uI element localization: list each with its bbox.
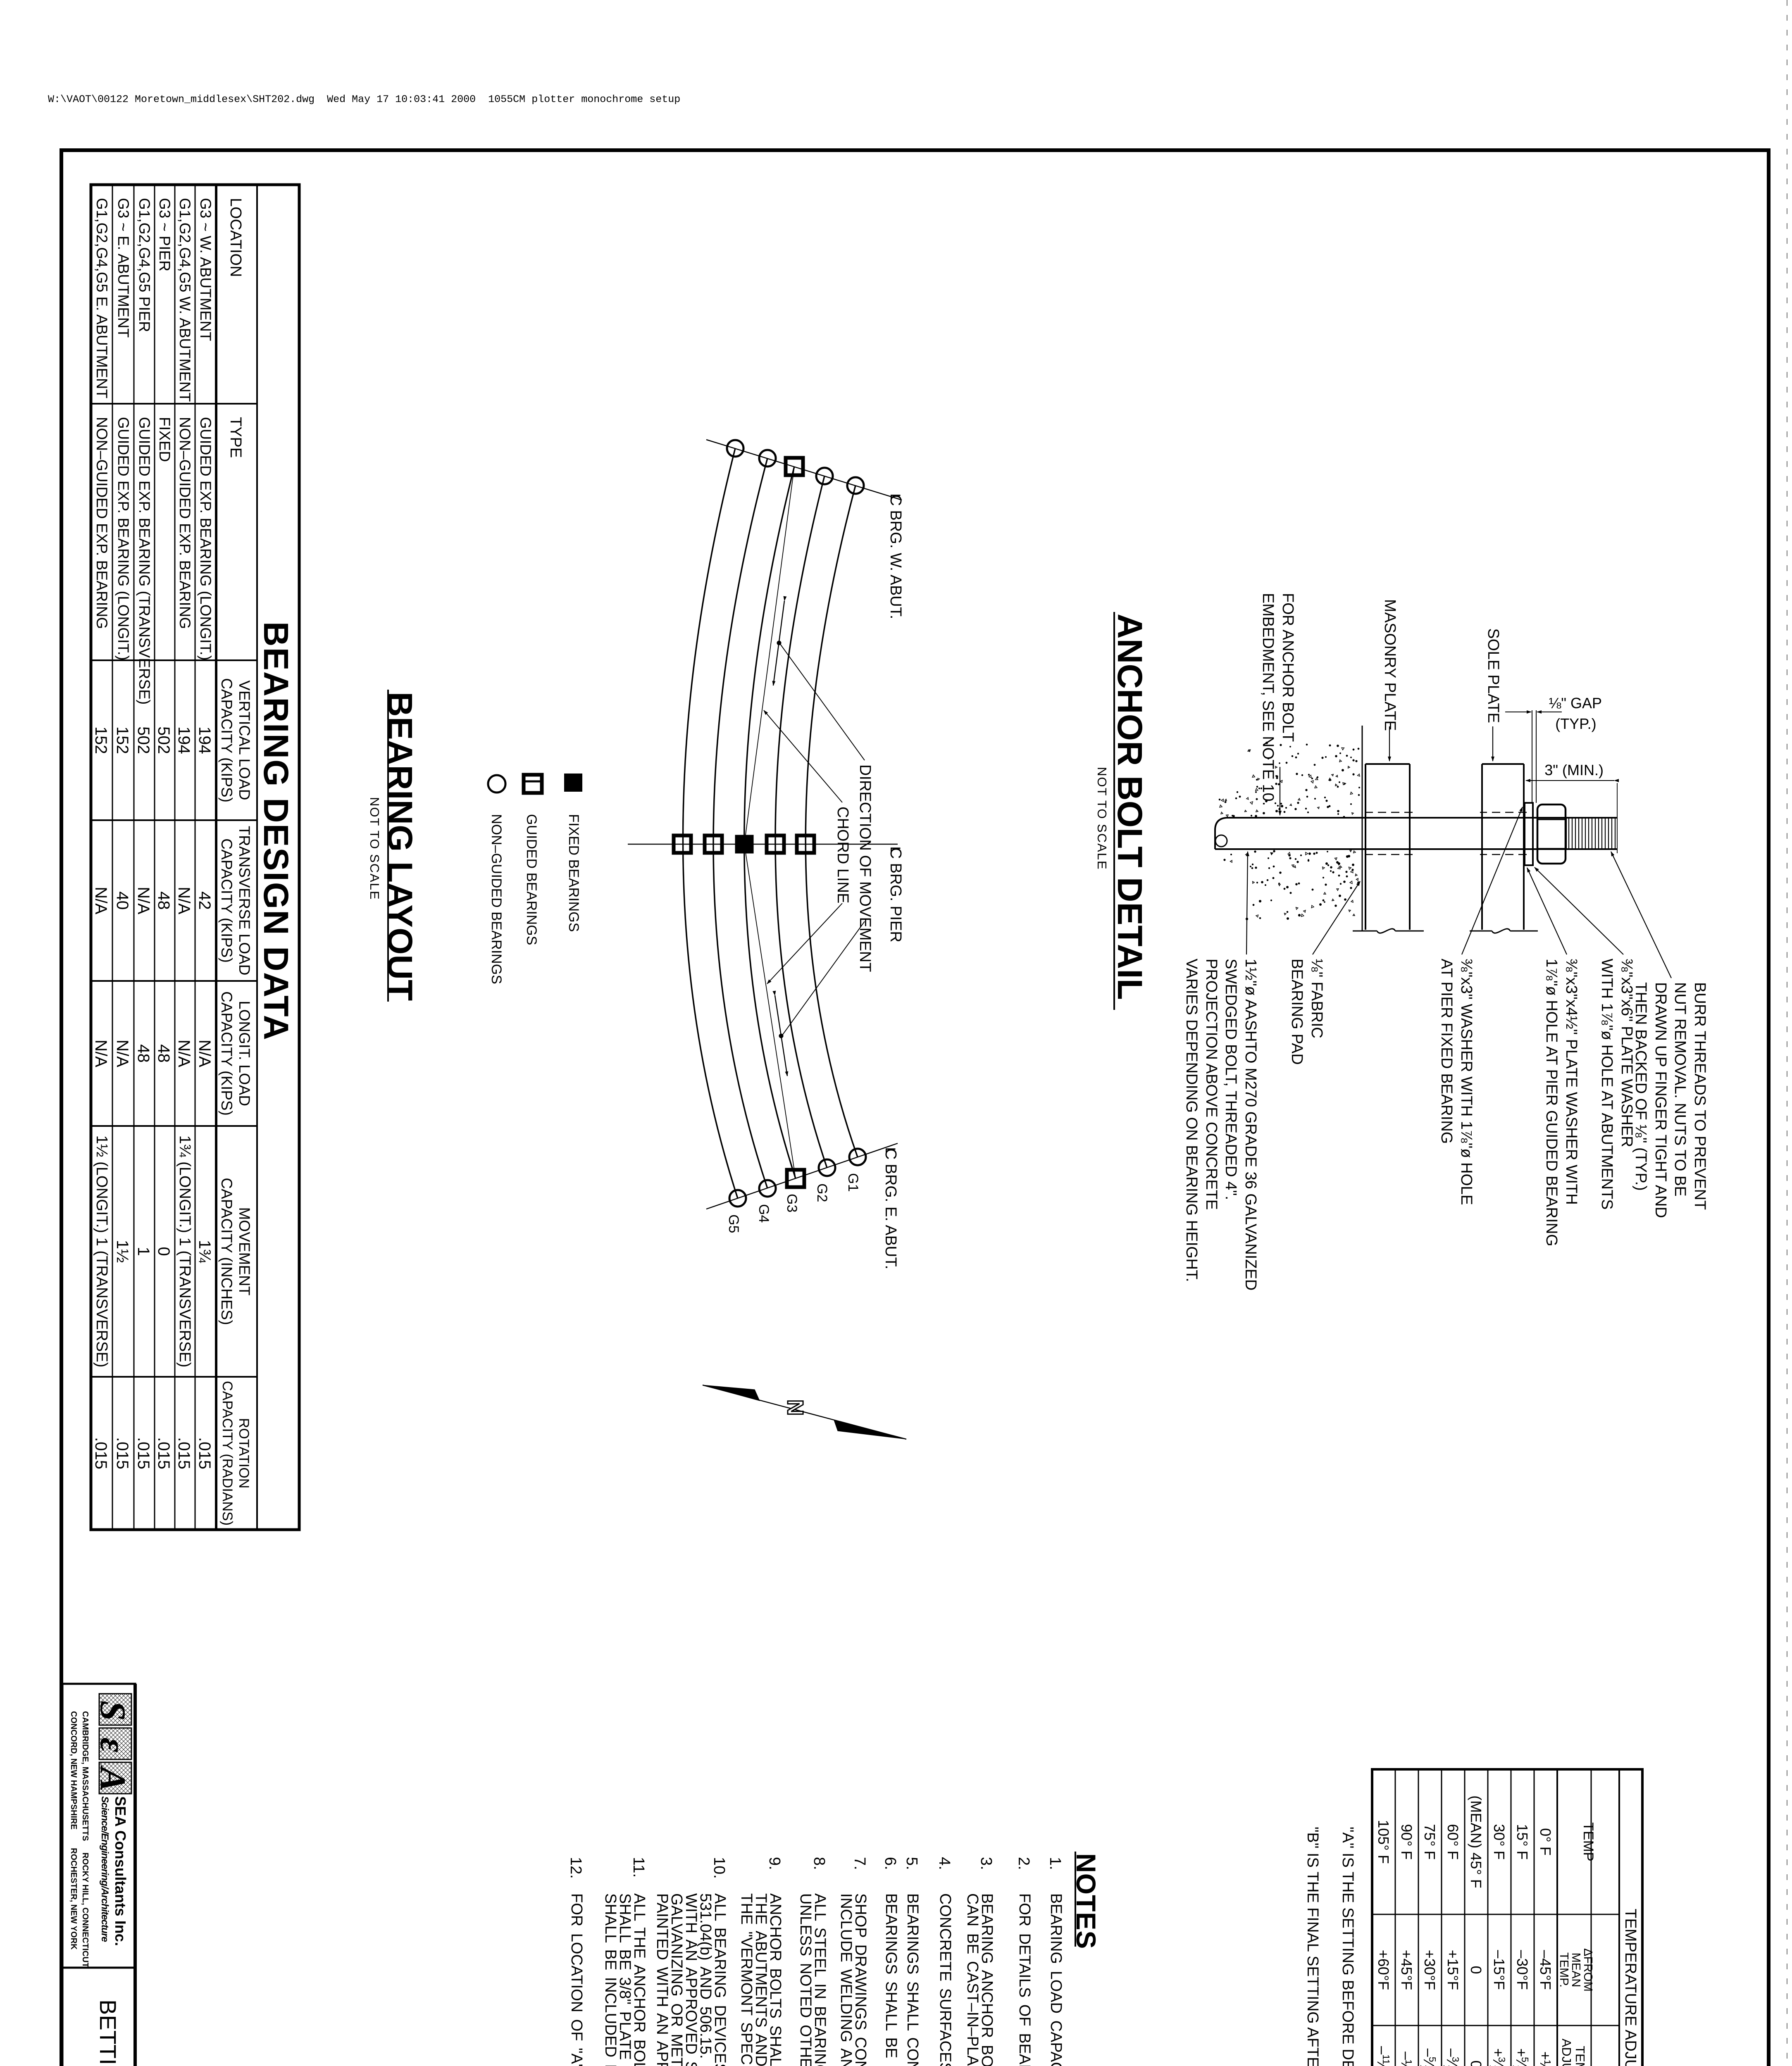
svg-text:A: A <box>93 1765 133 1792</box>
svg-text:ε: ε <box>93 1738 133 1752</box>
svg-text:S: S <box>93 1701 133 1721</box>
